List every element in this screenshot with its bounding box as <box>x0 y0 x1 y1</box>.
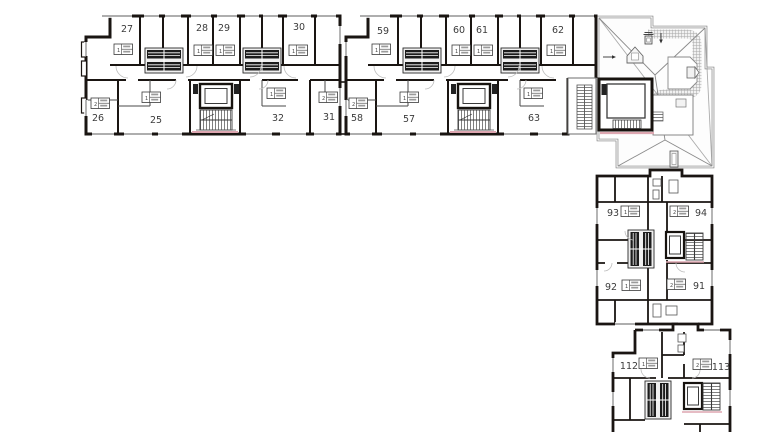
unit-29-stamp: 1 <box>216 45 235 56</box>
unit-28-stamp: 1 <box>194 45 213 56</box>
unit-60-number: 60 <box>453 25 465 36</box>
svg-text:1: 1 <box>219 49 222 55</box>
roof-hatch-access <box>653 95 693 135</box>
unit-60-stamp: 1 <box>452 45 471 56</box>
unit-113-stamp: 2 <box>693 359 712 370</box>
bottom-block <box>611 324 732 432</box>
elevator <box>200 84 232 108</box>
unit-63-number: 63 <box>528 113 540 124</box>
roof-vent <box>670 151 678 167</box>
stairs <box>458 110 490 130</box>
unit-63-stamp: 1 <box>524 88 543 99</box>
svg-text:1: 1 <box>625 284 628 290</box>
svg-text:1: 1 <box>527 92 530 98</box>
unit-58-number: 58 <box>351 113 363 124</box>
svg-text:1: 1 <box>403 96 406 102</box>
svg-text:1: 1 <box>197 49 200 55</box>
unit-57-number: 57 <box>403 114 415 125</box>
stairs <box>703 383 720 410</box>
unit-113-number: 113 <box>712 362 730 373</box>
loggia <box>145 48 183 73</box>
unit-30-number: 30 <box>293 22 305 33</box>
unit-31-stamp: 2 <box>319 92 338 103</box>
balcony <box>645 381 671 419</box>
stairs <box>200 110 232 130</box>
unit-25-stamp: 1 <box>142 92 161 103</box>
loggia <box>501 48 539 73</box>
svg-text:2: 2 <box>352 102 355 108</box>
loggia <box>243 48 281 73</box>
unit-61-stamp: 1 <box>474 45 493 56</box>
unit-59-number: 59 <box>377 26 389 37</box>
unit-27-number: 27 <box>121 24 133 35</box>
unit-112-stamp: 1 <box>639 358 658 369</box>
terrace-stair <box>568 78 596 134</box>
svg-text:2: 2 <box>94 102 97 108</box>
elevator <box>458 84 490 108</box>
svg-text:1: 1 <box>550 49 553 55</box>
chimney-icon <box>644 33 654 45</box>
svg-text:1: 1 <box>375 48 378 54</box>
svg-text:1: 1 <box>624 210 627 216</box>
balcony <box>628 230 654 268</box>
unit-61-number: 61 <box>476 25 488 36</box>
unit-32-number: 32 <box>272 113 284 124</box>
unit-26-number: 26 <box>92 113 104 124</box>
svg-text:2: 2 <box>322 96 325 102</box>
svg-text:2: 2 <box>673 210 676 216</box>
unit-93-number: 93 <box>607 208 619 219</box>
roof-island <box>668 57 699 89</box>
unit-27-stamp: 1 <box>114 44 133 55</box>
stair-core-middle <box>450 84 497 132</box>
elevator <box>684 383 702 409</box>
svg-text:1: 1 <box>145 96 148 102</box>
unit-94-number: 94 <box>695 208 707 219</box>
unit-91-number: 91 <box>693 281 705 292</box>
unit-57-stamp: 1 <box>400 92 419 103</box>
elevator <box>666 232 684 258</box>
svg-text:1: 1 <box>270 92 273 98</box>
unit-93-stamp: 1 <box>621 206 640 217</box>
unit-32-stamp: 1 <box>267 88 286 99</box>
unit-62-stamp: 1 <box>547 45 566 56</box>
unit-92-number: 92 <box>605 282 617 293</box>
svg-text:1: 1 <box>292 49 295 55</box>
unit-62-number: 62 <box>552 25 564 36</box>
unit-25-number: 25 <box>150 115 162 126</box>
svg-text:1: 1 <box>477 49 480 55</box>
svg-text:2: 2 <box>696 363 699 369</box>
svg-text:1: 1 <box>117 48 120 54</box>
floor-plan-drawing: 27 28 29 30 26 25 32 31 59 60 61 62 58 5… <box>0 0 768 432</box>
floor-plan-page: 27 28 29 30 26 25 32 31 59 60 61 62 58 5… <box>0 0 768 432</box>
unit-28-number: 28 <box>196 23 208 34</box>
loggia <box>403 48 441 73</box>
unit-91-stamp: 2 <box>667 279 686 290</box>
corner-stair-core <box>599 79 654 133</box>
unit-92-stamp: 1 <box>622 280 641 291</box>
unit-112-number: 112 <box>620 361 638 372</box>
svg-text:2: 2 <box>670 283 673 289</box>
unit-30-stamp: 1 <box>289 45 308 56</box>
unit-58-stamp: 2 <box>349 98 368 109</box>
stairs <box>686 233 703 260</box>
unit-94-stamp: 2 <box>670 206 689 217</box>
unit-29-number: 29 <box>218 23 230 34</box>
lower-right-block <box>595 170 714 326</box>
svg-text:1: 1 <box>455 49 458 55</box>
unit-26-stamp: 2 <box>91 98 110 109</box>
unit-59-stamp: 1 <box>372 44 391 55</box>
svg-text:1: 1 <box>642 362 645 368</box>
unit-31-number: 31 <box>323 112 335 123</box>
